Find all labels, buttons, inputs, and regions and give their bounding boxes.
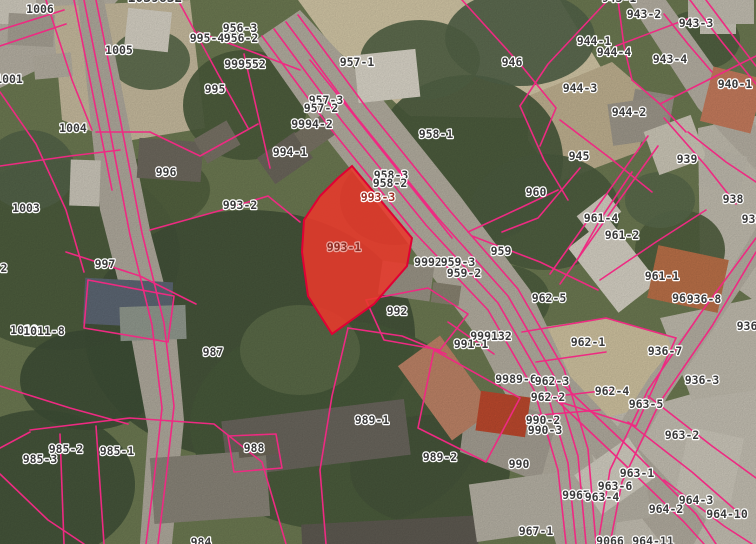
parcel-label: 992 — [387, 304, 408, 318]
parcel-label: 964-10 — [706, 507, 748, 521]
parcel-label: 967-1 — [519, 524, 554, 538]
parcel-label: 989-2 — [423, 450, 458, 464]
parcel-label: 943-1 — [602, 0, 637, 5]
parcel-label: 1006 — [26, 2, 54, 16]
parcel-label: 985-3 — [23, 452, 58, 466]
parcel-label: 994-1 — [273, 145, 308, 159]
parcel-label: 946 — [502, 55, 523, 69]
parcel-label: 9066 — [596, 534, 624, 544]
parcel-label: 1011-8 — [23, 324, 65, 338]
parcel-label: 9994-2 — [291, 117, 333, 131]
parcel-label: 2 — [1, 261, 8, 275]
parcel-label: 933 — [742, 212, 756, 226]
parcel-label: 9992 — [414, 255, 442, 269]
parcel-label: 959 — [491, 244, 512, 258]
parcel-label: 1003 — [12, 201, 40, 215]
parcel-label: 999552 — [224, 57, 266, 71]
parcel-label: 943-4 — [653, 52, 688, 66]
parcel-label: 963-5 — [629, 397, 664, 411]
parcel-label: 943-3 — [679, 16, 714, 30]
parcel-label: 956-2 — [224, 31, 259, 45]
parcel-label: 964-3 — [679, 493, 714, 507]
parcel-label: 964-11 — [632, 534, 674, 544]
parcel-label: 944-3 — [563, 81, 598, 95]
parcel-label: 962-1 — [571, 335, 606, 349]
parcel-label: 961-1 — [645, 269, 680, 283]
parcel-label: 990-3 — [528, 423, 563, 437]
parcel-label: 964-2 — [649, 502, 684, 516]
parcel-label: 958-2 — [373, 176, 408, 190]
parcel-label: 938 — [723, 192, 744, 206]
parcel-label: 1005 — [105, 43, 133, 57]
parcel-label: 963-1 — [620, 466, 655, 480]
parcel-label: 939 — [677, 152, 698, 166]
parcel-label: 940-1 — [718, 77, 753, 91]
parcel-label: 945 — [569, 149, 590, 163]
parcel-label: 9989-6 — [495, 372, 537, 386]
parcel-label: 936 — [737, 319, 756, 333]
parcel-label: 990 — [509, 457, 530, 471]
parcel-label: 984 — [191, 535, 212, 544]
parcel-label: 959-2 — [447, 266, 482, 280]
parcel-label: 989-1 — [355, 413, 390, 427]
parcel-label: 963-4 — [585, 490, 620, 504]
parcel-label: 96 — [672, 291, 686, 305]
parcel-label: 993-3 — [361, 190, 396, 204]
parcel-label: 960 — [526, 185, 547, 199]
parcel-label: 1004 — [59, 121, 87, 135]
parcel-label: 1039632 — [128, 0, 183, 6]
parcel-label: 988 — [244, 441, 265, 455]
parcel-label: 958-1 — [419, 127, 454, 141]
parcel-label: 962-3 — [535, 374, 570, 388]
parcel-label: 995-4 — [190, 31, 225, 45]
parcel-label: 936-3 — [685, 373, 720, 387]
selected-parcel-label: 993-1 — [327, 240, 362, 254]
parcel-label: 985-1 — [100, 444, 135, 458]
parcel-label: 987 — [203, 345, 224, 359]
map-viewport[interactable]: 10061039632956-3995-4956-299955210051001… — [0, 0, 756, 544]
parcel-label: 936-8 — [687, 292, 722, 306]
parcel-label: 936-7 — [648, 344, 683, 358]
parcel-label: 943-2 — [627, 7, 662, 21]
parcel-label: 961-4 — [584, 211, 619, 225]
parcel-label: 957-1 — [340, 55, 375, 69]
parcel-label: 962-2 — [531, 390, 566, 404]
parcel-label: 995 — [205, 82, 226, 96]
parcel-label: 993-2 — [223, 198, 258, 212]
parcel-label: 944-2 — [612, 105, 647, 119]
parcel-label: 997 — [95, 257, 116, 271]
cadastral-map-svg[interactable]: 10061039632956-3995-4956-299955210051001… — [0, 0, 756, 544]
parcel-label: 957-2 — [304, 101, 339, 115]
parcel-label: 961-2 — [605, 228, 640, 242]
parcel-label: 944-4 — [597, 45, 632, 59]
parcel-label: 991-1 — [454, 337, 489, 351]
parcel-label: 963-2 — [665, 428, 700, 442]
parcel-label: 996 — [156, 165, 177, 179]
parcel-label: 962-5 — [532, 291, 567, 305]
parcel-label: 1001 — [0, 72, 23, 86]
parcel-label: 962-4 — [595, 384, 630, 398]
